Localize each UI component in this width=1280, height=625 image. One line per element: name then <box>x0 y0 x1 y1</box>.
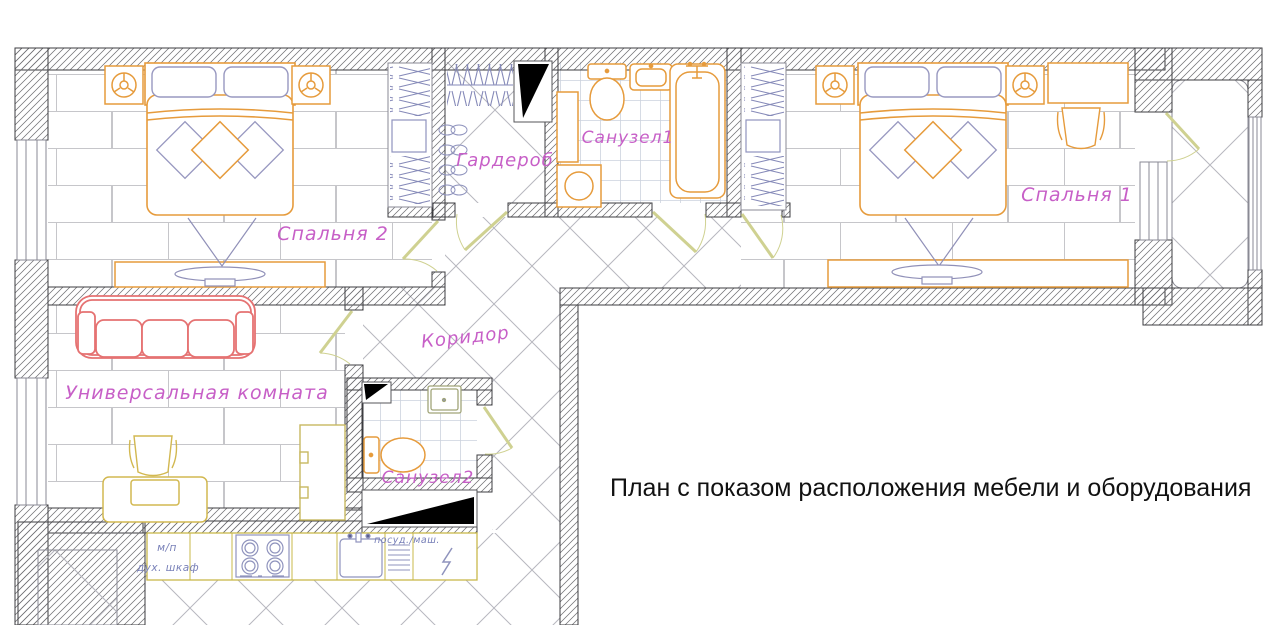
wall-bedroom1-right-1 <box>1135 48 1172 112</box>
sink2 <box>428 386 461 413</box>
vent-bathroom2-small <box>362 382 391 403</box>
wall-closet2-bottom <box>388 207 432 217</box>
bed1-nightstand-left <box>816 66 854 104</box>
wall-bath2-left <box>347 390 362 478</box>
bathroom1-label: Санузел1 <box>582 128 675 148</box>
balcony-floor <box>1172 80 1248 288</box>
wall-main-bottom <box>560 288 1165 305</box>
bath1-cabinet <box>557 92 578 162</box>
floor-plan-drawing: Спальня 2 Гардероб Санузел1 Спальня 1 Ко… <box>0 0 1280 625</box>
wall-midband-3 <box>706 203 741 217</box>
wall-kitchen-top <box>143 521 362 533</box>
wall-balcony-right-1 <box>1248 80 1262 117</box>
vent-wardrobe <box>514 61 552 122</box>
wall-midband-1 <box>433 203 455 217</box>
shaft-floor-overlay <box>38 550 117 625</box>
bed1-pillow-right <box>937 67 1001 97</box>
universal-desk <box>103 477 207 522</box>
bed2-pillow-left <box>152 67 216 97</box>
bed1-nightstand-right <box>1006 66 1044 104</box>
bedroom1-balcony-window <box>1140 162 1167 240</box>
wall-universal-right-1 <box>345 287 363 310</box>
bed1-pillow-left <box>865 67 929 97</box>
bedroom2-label: Спальня 2 <box>277 223 389 245</box>
universal-window <box>17 378 46 505</box>
sink1 <box>630 64 672 90</box>
wall-corridor-right <box>560 305 578 625</box>
wall-bath2-right-1 <box>477 390 492 405</box>
bedroom2-closet <box>388 63 432 207</box>
wall-balcony-bottom <box>1143 288 1262 325</box>
bed2-nightstand-right <box>292 66 330 104</box>
bathroom2-label: Санузел2 <box>382 468 475 488</box>
bedroom1-closet <box>741 63 786 210</box>
microwave-label: м/п <box>157 542 177 554</box>
washing-machine <box>557 165 601 207</box>
balcony-outer-window <box>1249 117 1261 270</box>
corridor-floor-lower <box>492 378 560 530</box>
wall-bath2-right-2 <box>477 455 492 478</box>
toilet1 <box>588 64 626 120</box>
universal-room-label: Универсальная комната <box>65 382 328 404</box>
floor-plan-page: Спальня 2 Гардероб Санузел1 Спальня 1 Ко… <box>0 0 1280 625</box>
bed2-nightstand-left <box>105 66 143 104</box>
wall-bath1-right <box>727 48 741 217</box>
wall-bedroom2-right-2 <box>432 272 445 287</box>
wall-left-1 <box>15 48 48 140</box>
vent-kitchen <box>362 490 477 527</box>
wall-left-2 <box>15 260 48 378</box>
stove <box>236 535 289 577</box>
oven-cabinet-label: дух. шкаф <box>136 562 199 574</box>
bed2-pillow-right <box>224 67 288 97</box>
bedroom2-window <box>17 140 46 260</box>
dishwasher-label: посуд./маш. <box>374 535 440 546</box>
bathtub <box>670 63 725 199</box>
wardrobe-rack <box>447 64 513 106</box>
sofa <box>76 296 255 358</box>
bed1-cushions <box>870 122 997 179</box>
universal-wardrobe <box>300 425 345 520</box>
bedroom1-label: Спальня 1 <box>1021 184 1133 206</box>
wardrobe-label: Гардероб <box>456 150 554 171</box>
bedroom1-desk <box>1048 63 1128 103</box>
plan-title: План с показом расположения мебели и обо… <box>610 474 1251 502</box>
bed2-cushions <box>157 122 284 179</box>
